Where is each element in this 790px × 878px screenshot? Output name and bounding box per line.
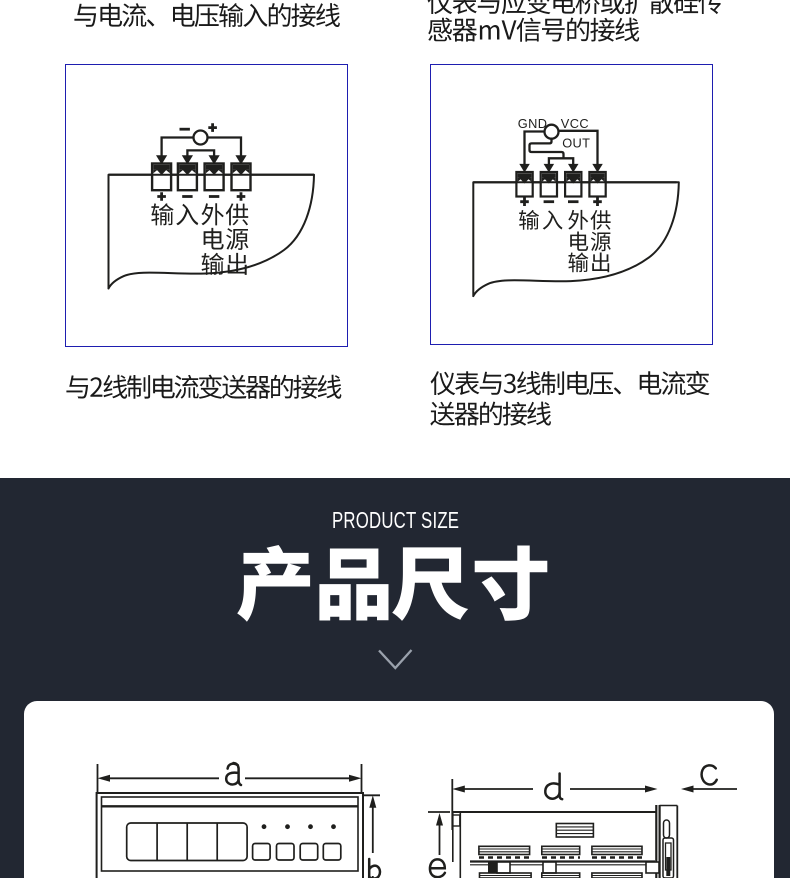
svg-text:VCC: VCC [561,116,589,131]
svg-text:GND: GND [518,116,548,131]
svg-text:OUT: OUT [562,136,590,151]
svg-text:PRODUCT SIZE: PRODUCT SIZE [332,508,459,533]
